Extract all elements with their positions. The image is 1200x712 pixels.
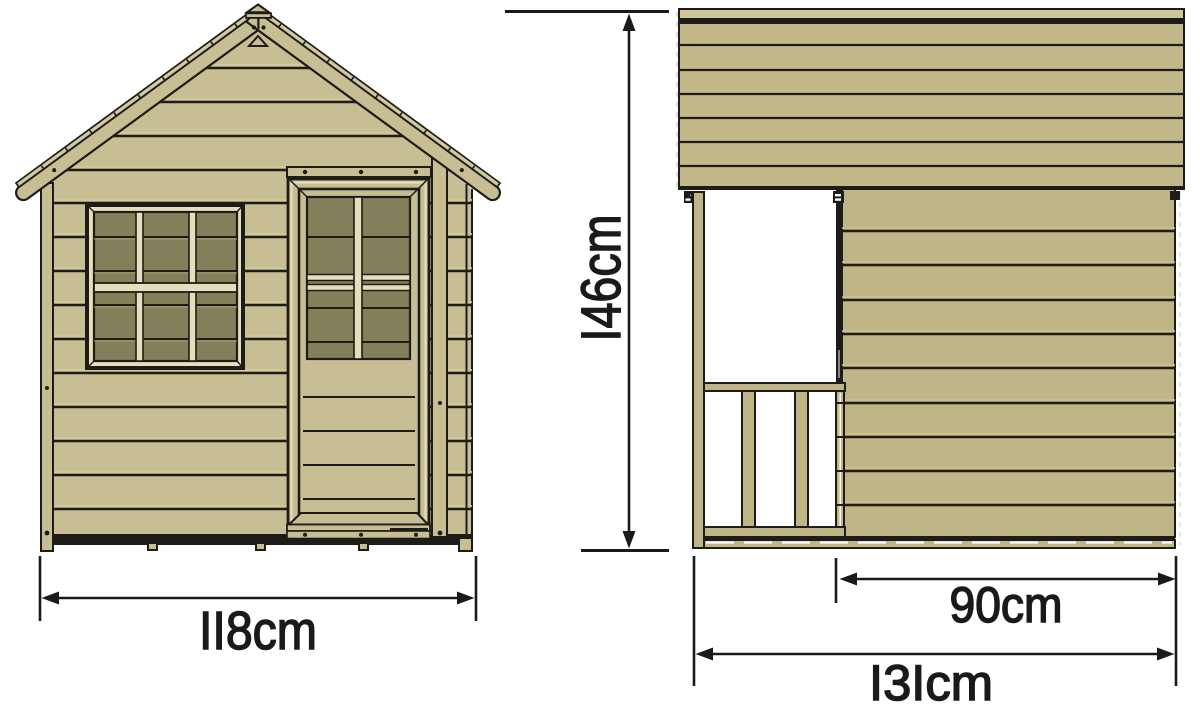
svg-text:I3Icm: I3Icm (869, 655, 993, 711)
svg-text:I46cm: I46cm (569, 215, 632, 342)
svg-text:90cm: 90cm (950, 577, 1063, 633)
svg-text:II8cm: II8cm (199, 601, 317, 661)
